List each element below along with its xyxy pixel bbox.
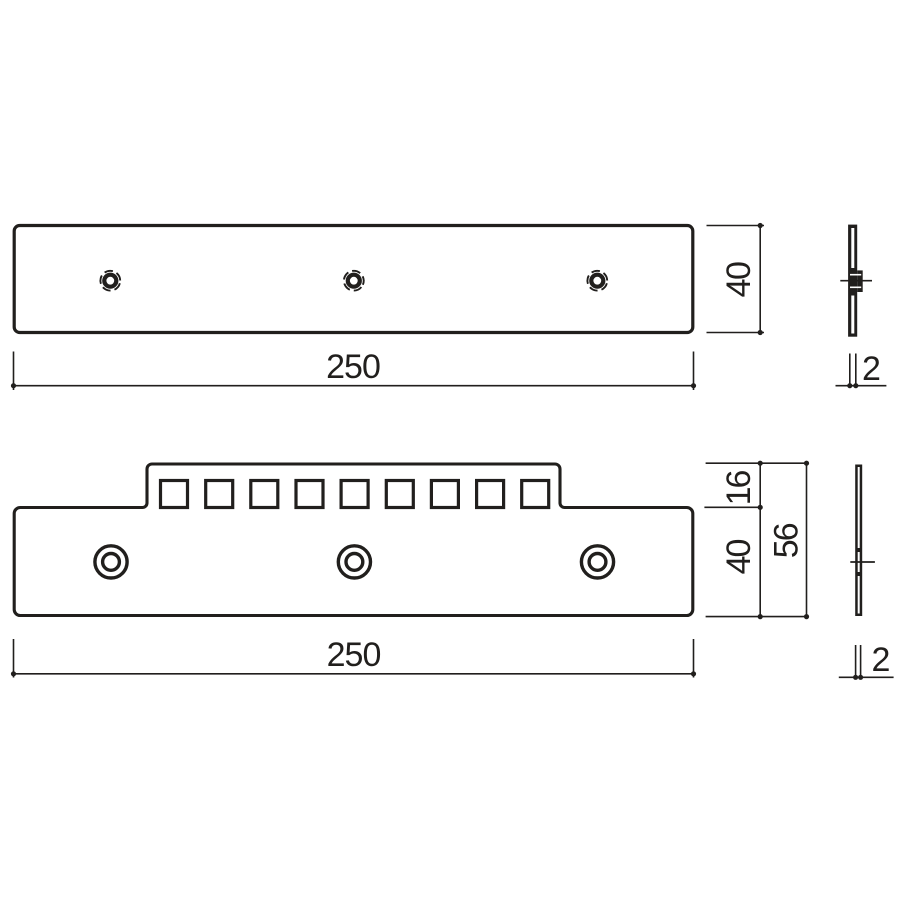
svg-text:40: 40 xyxy=(720,540,758,575)
svg-text:40: 40 xyxy=(720,262,758,297)
svg-text:250: 250 xyxy=(326,348,380,386)
svg-text:16: 16 xyxy=(720,471,758,506)
svg-text:2: 2 xyxy=(862,350,880,388)
svg-text:250: 250 xyxy=(327,636,381,674)
svg-text:56: 56 xyxy=(767,523,805,558)
svg-text:2: 2 xyxy=(872,641,890,679)
